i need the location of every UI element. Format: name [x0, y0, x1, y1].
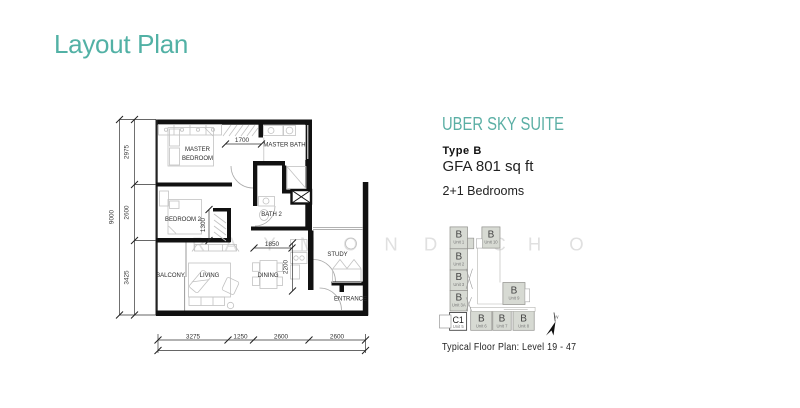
svg-text:Unit 9: Unit 9 [509, 296, 521, 301]
svg-text:2200: 2200 [283, 259, 290, 274]
svg-text:2600: 2600 [330, 334, 345, 341]
svg-text:1700: 1700 [235, 137, 250, 144]
svg-text:BEDROOM 2: BEDROOM 2 [165, 217, 202, 223]
svg-text:LIVING: LIVING [200, 273, 220, 279]
svg-text:Unit 6: Unit 6 [476, 324, 488, 329]
svg-text:BATH 2: BATH 2 [261, 212, 282, 218]
svg-text:MASTER BATH: MASTER BATH [263, 143, 305, 149]
svg-text:Unit 3A: Unit 3A [452, 303, 466, 308]
svg-text:Unit 7: Unit 7 [497, 324, 509, 329]
svg-text:2600: 2600 [274, 334, 289, 341]
svg-text:H: H [528, 233, 541, 254]
svg-text:D: D [424, 233, 437, 254]
svg-text:Unit 1: Unit 1 [453, 240, 465, 245]
svg-text:Unit 2: Unit 2 [453, 261, 465, 266]
svg-text:Unit 5: Unit 5 [453, 324, 465, 329]
svg-text:ENTRANCE: ENTRANCE [334, 297, 367, 303]
svg-text:STUDY: STUDY [327, 252, 347, 258]
svg-text:MASTER: MASTER [185, 147, 211, 153]
svg-text:DINING: DINING [258, 273, 279, 279]
svg-text:1850: 1850 [265, 241, 280, 248]
svg-text:1300: 1300 [200, 217, 207, 232]
svg-text:9000: 9000 [109, 209, 116, 224]
svg-text:1250: 1250 [233, 334, 248, 341]
svg-text:3275: 3275 [186, 334, 201, 341]
svg-text:N: N [384, 233, 397, 254]
svg-text:N: N [555, 315, 559, 320]
svg-text:BEDROOM: BEDROOM [182, 156, 213, 162]
svg-text:O: O [569, 233, 583, 254]
svg-text:BALCONY: BALCONY [156, 273, 185, 279]
svg-text:Unit 10: Unit 10 [484, 240, 498, 245]
svg-text:2600: 2600 [124, 205, 131, 220]
svg-text:2975: 2975 [124, 144, 131, 159]
svg-text:3425: 3425 [124, 270, 131, 285]
svg-text:Unit 8: Unit 8 [518, 324, 530, 329]
svg-text:Unit 3: Unit 3 [453, 282, 465, 287]
